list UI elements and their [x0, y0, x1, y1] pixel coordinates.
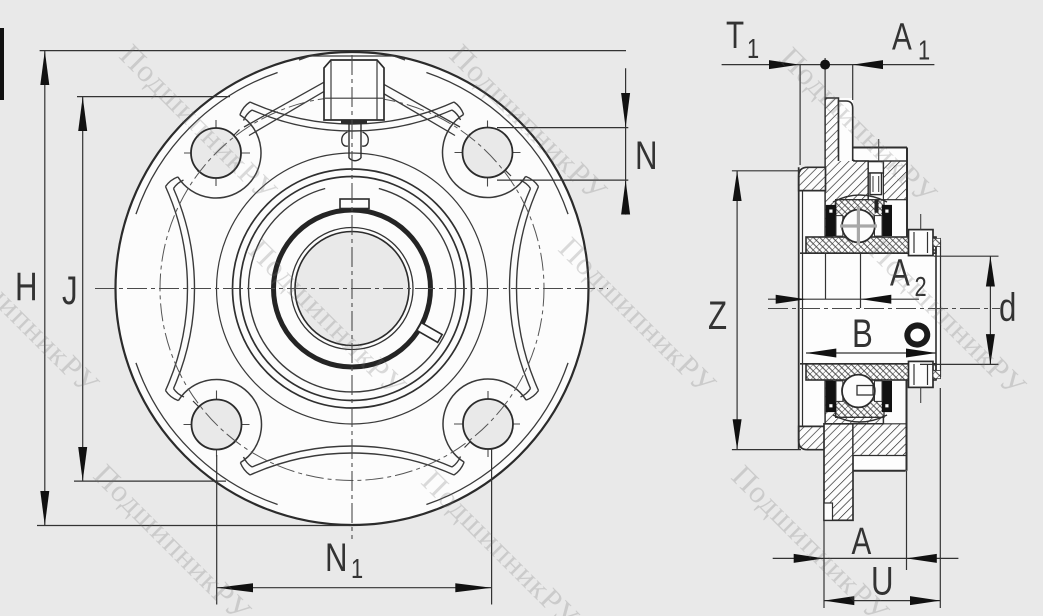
svg-text:B: B — [852, 311, 873, 356]
svg-text:J: J — [62, 268, 78, 313]
svg-text:1: 1 — [918, 35, 930, 66]
svg-text:N: N — [635, 133, 658, 178]
svg-text:1: 1 — [351, 553, 363, 584]
svg-text:A: A — [892, 16, 912, 58]
svg-text:T: T — [726, 15, 744, 57]
svg-text:d: d — [999, 285, 1016, 330]
svg-text:1: 1 — [747, 33, 759, 64]
svg-text:Z: Z — [708, 293, 727, 338]
svg-text:N: N — [325, 535, 348, 580]
svg-text:A: A — [852, 521, 872, 563]
